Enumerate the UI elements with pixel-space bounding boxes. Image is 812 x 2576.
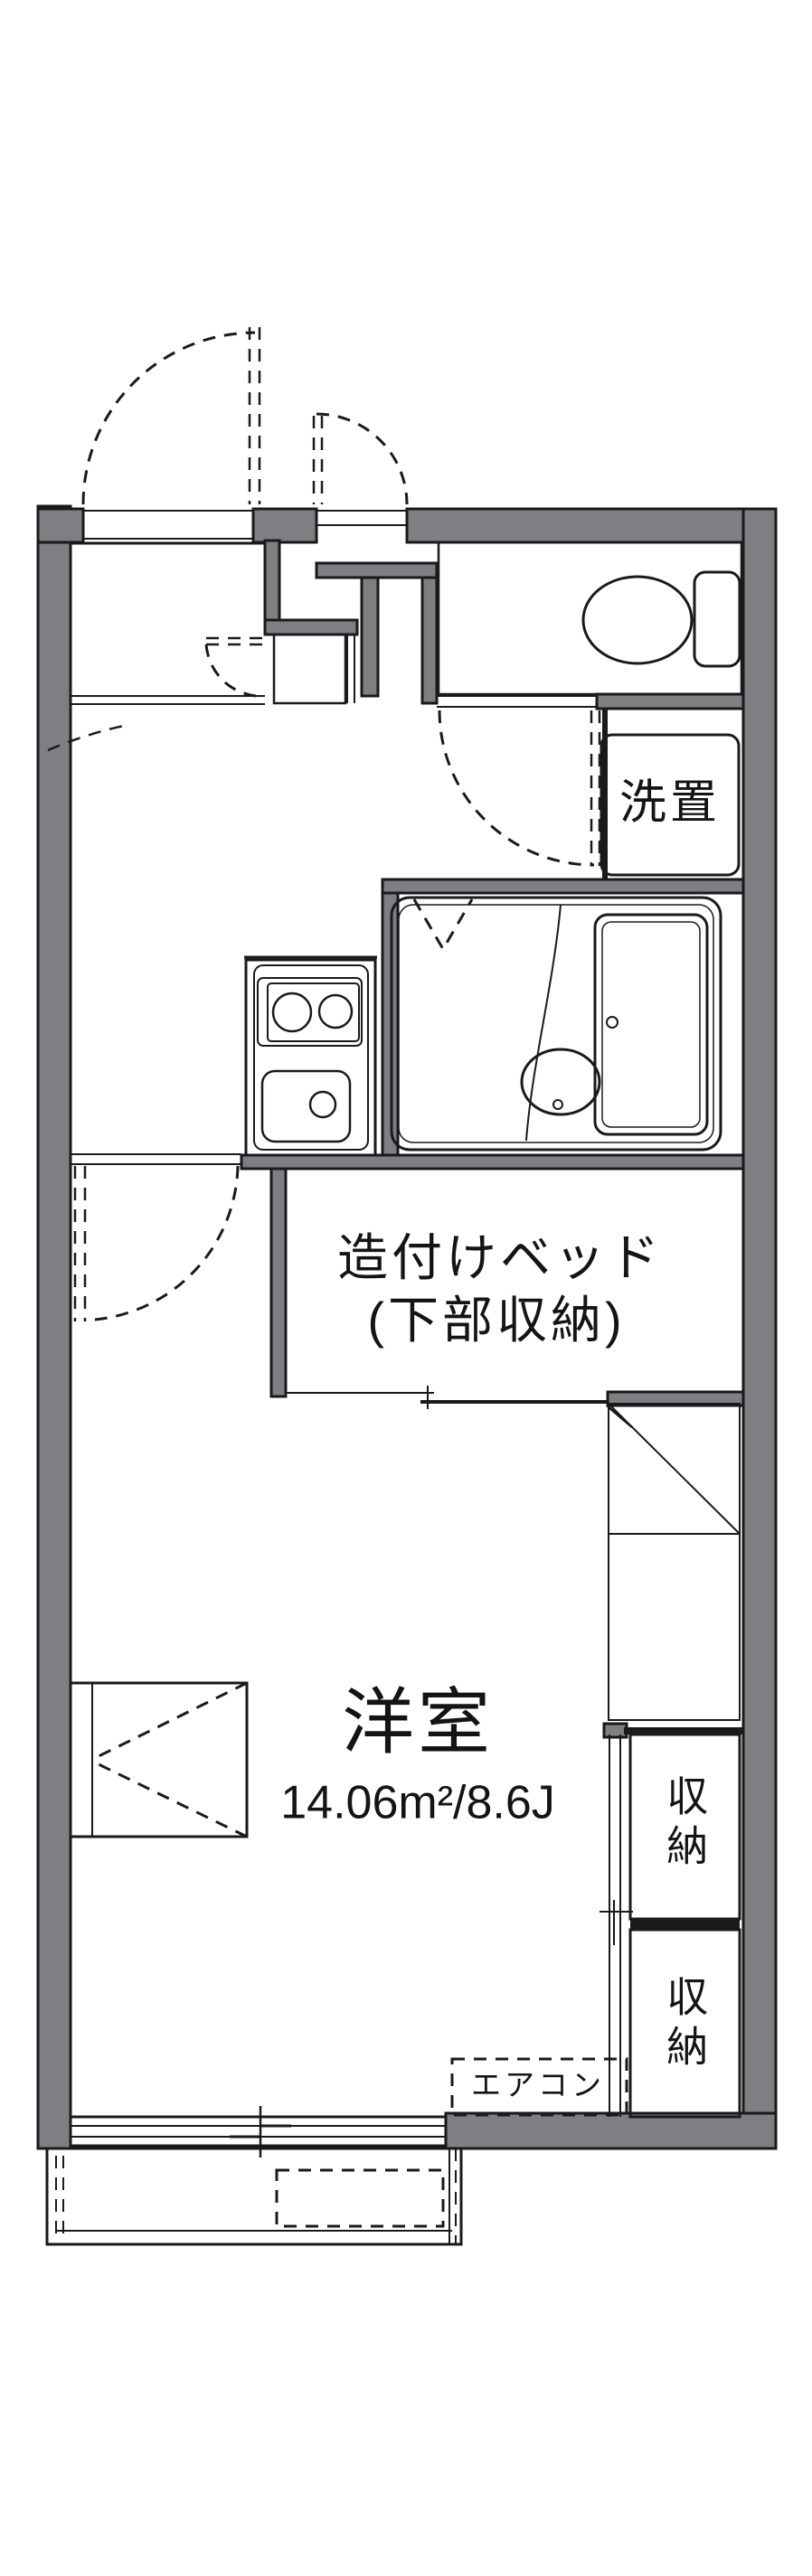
washer-room-label: 洗置 [619,777,721,829]
built-in-bed-label: 造付けベッド [337,1230,663,1286]
closet-lower-label: 収納 [662,1975,708,2074]
wall-niche-h1 [265,620,357,635]
hallway-door-arc [439,710,594,865]
porch-door-arc [316,414,407,504]
bath-unit-icon [392,898,721,1150]
stove-inner-line [268,983,359,1041]
wall-bed-left [271,1169,286,1396]
kitchen-sink-icon [262,1071,350,1142]
aircon-label: エアコン [471,2069,605,2101]
western-room-label: 洋室 [342,1683,494,1763]
wall-closet-divider [630,1919,740,1930]
kitchen-counter [246,960,375,1155]
sink-drain-icon [310,1092,335,1117]
wall-niche-h2 [316,563,437,578]
wall-toilet-bottom [597,694,743,709]
wall-top-c [407,509,776,542]
wall-top-b [253,509,316,542]
bathtub-icon [595,915,707,1134]
fridge-space-diagonal [609,1404,740,1534]
genkan-tile [274,635,345,703]
toilet-bowl-icon [583,577,692,663]
wall-closet-nub [604,1724,627,1737]
toilet-floor [439,542,741,694]
balcony-equipment-pad [277,2170,443,2226]
wall-niche-v3 [362,578,378,696]
bath-floor-curve [526,905,561,1141]
bed-storage-label: (下部収納) [367,1293,625,1349]
wall-bath-top [382,879,743,893]
folding-table-mark2 [93,1762,247,1837]
burner-left-icon [273,993,311,1031]
fridge-space [609,1404,740,1720]
folding-table-mark1 [93,1683,247,1759]
entrance-door-arc [83,333,255,504]
floor-plan-drawing [0,0,812,2576]
bath-folding-door-mark [414,899,472,949]
burner-right-icon [319,995,352,1028]
closet-upper-label: 収納 [662,1774,708,1874]
bathtub-drain-icon [607,1017,618,1028]
wall-bottom [446,2113,776,2148]
toilet-tank-icon [694,572,740,666]
basin-drain-icon [553,1100,562,1109]
wall-top-a [38,509,83,542]
wall-washer-partition [602,709,608,880]
folding-table-icon [71,1683,247,1837]
wall-kitchen-bottom [241,1155,743,1169]
wall-niche-v2 [422,578,437,703]
genkan-door-arc [206,644,256,696]
wall-right [743,509,776,2148]
room-area-label: 14.06m²/8.6J [280,1777,555,1829]
window-and-balcony [47,2106,461,2244]
doors [48,327,600,1321]
room-door-arc [95,1166,238,1320]
floor-plan: 洗置 造付けベッド (下部収納) 洋室 14.06m²/8.6J 収納 収納 エ… [0,0,812,2576]
wall-left [38,506,71,2148]
sliding-window-icon [71,2117,446,2146]
